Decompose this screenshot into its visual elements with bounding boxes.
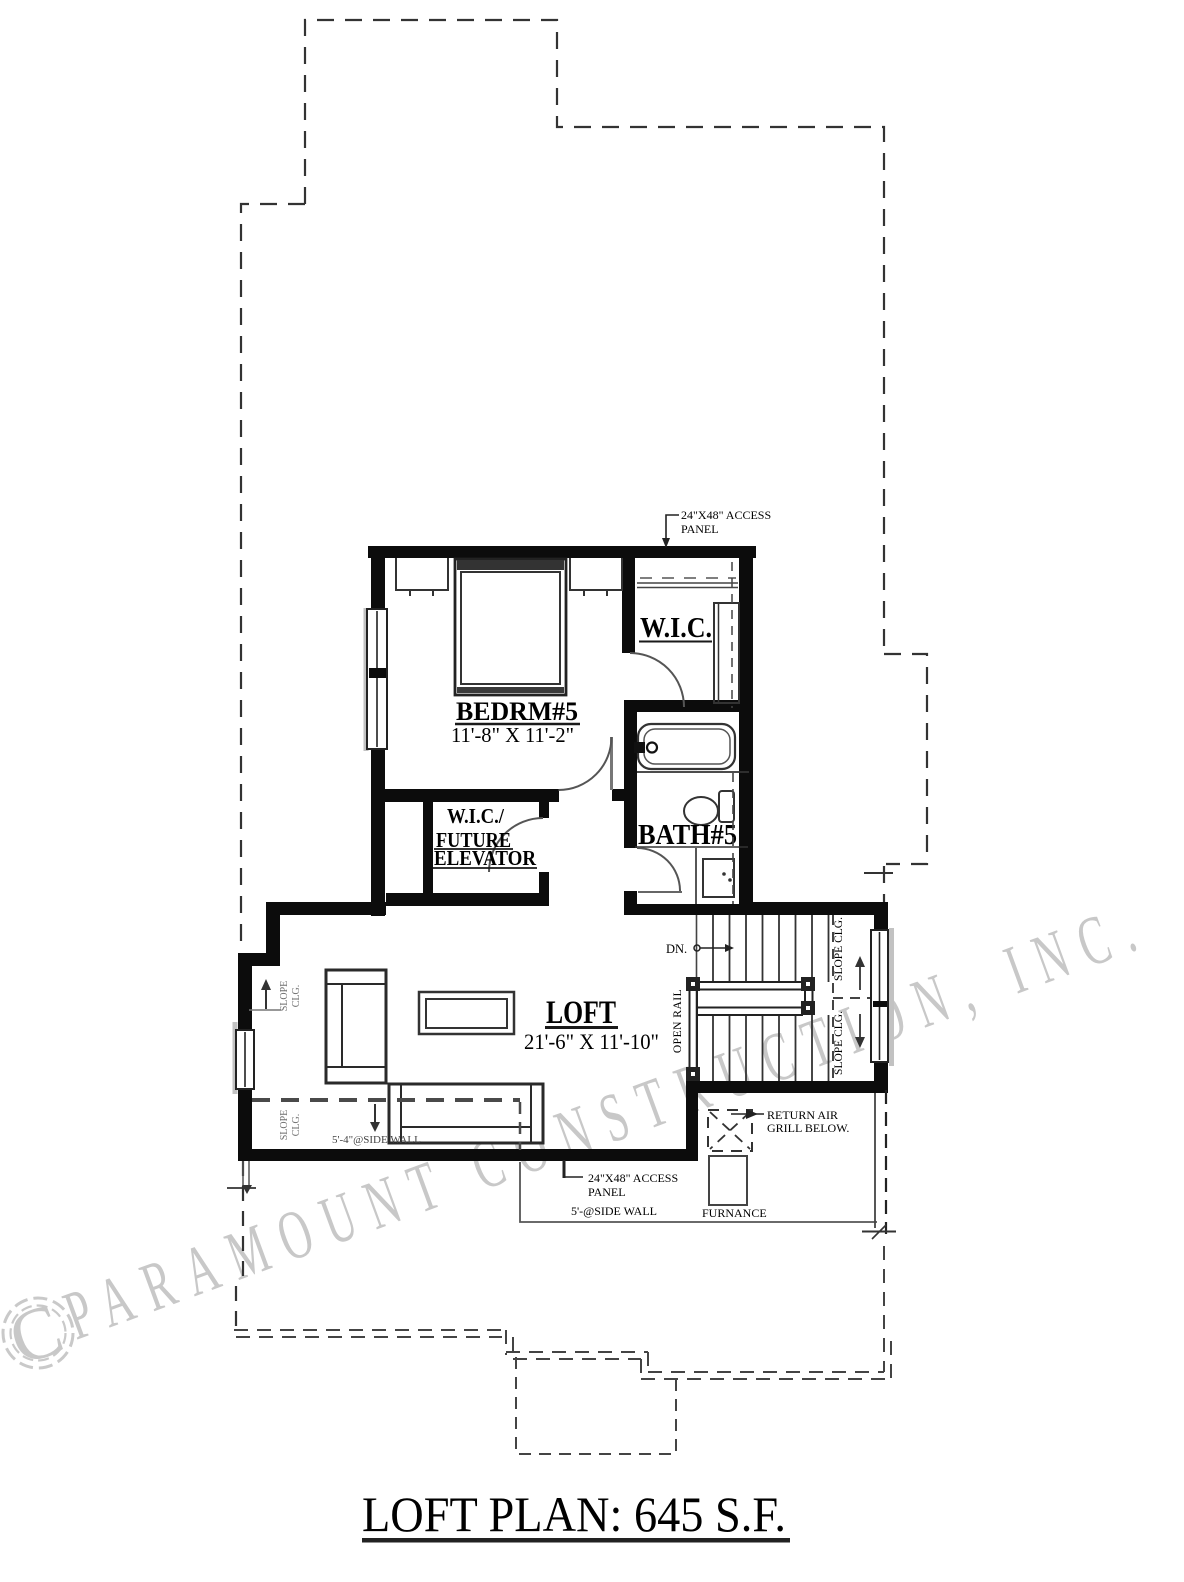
svg-text:5'-@SIDE WALL: 5'-@SIDE WALL [571,1204,657,1218]
svg-text:CLG.: CLG. [291,1114,302,1137]
svg-text:PANEL: PANEL [588,1185,626,1199]
svg-text:24"X48" ACCESS: 24"X48" ACCESS [681,508,771,522]
svg-text:GRILL BELOW.: GRILL BELOW. [767,1121,849,1135]
svg-text:PANEL: PANEL [681,522,719,536]
svg-text:DN.: DN. [666,942,687,956]
svg-text:SLOPE CLG.: SLOPE CLG. [833,1011,845,1075]
svg-text:11'-8" X 11'-2": 11'-8" X 11'-2" [451,723,574,747]
svg-text:LOFT: LOFT [546,995,616,1031]
svg-text:SLOPE: SLOPE [279,981,290,1012]
svg-text:LOFT PLAN: 645 S.F.: LOFT PLAN: 645 S.F. [362,1486,786,1542]
svg-text:CLG.: CLG. [291,985,302,1008]
svg-text:RETURN AIR: RETURN AIR [767,1108,838,1122]
svg-text:FURNANCE: FURNANCE [702,1206,767,1220]
svg-text:BEDRM#5: BEDRM#5 [456,697,578,726]
svg-text:SLOPE: SLOPE [279,1110,290,1141]
svg-text:24"X48" ACCESS: 24"X48" ACCESS [588,1171,678,1185]
svg-text:5'-4"@SIDE WALL: 5'-4"@SIDE WALL [332,1134,421,1146]
svg-text:W.I.C.: W.I.C. [640,613,712,644]
svg-text:21'-6" X 11'-10": 21'-6" X 11'-10" [524,1029,659,1054]
svg-text:ELEVATOR: ELEVATOR [434,846,537,870]
svg-text:OPEN RAIL: OPEN RAIL [672,989,684,1053]
svg-text:SLOPE CLG.: SLOPE CLG. [833,917,845,981]
svg-text:W.I.C./: W.I.C./ [447,804,505,828]
